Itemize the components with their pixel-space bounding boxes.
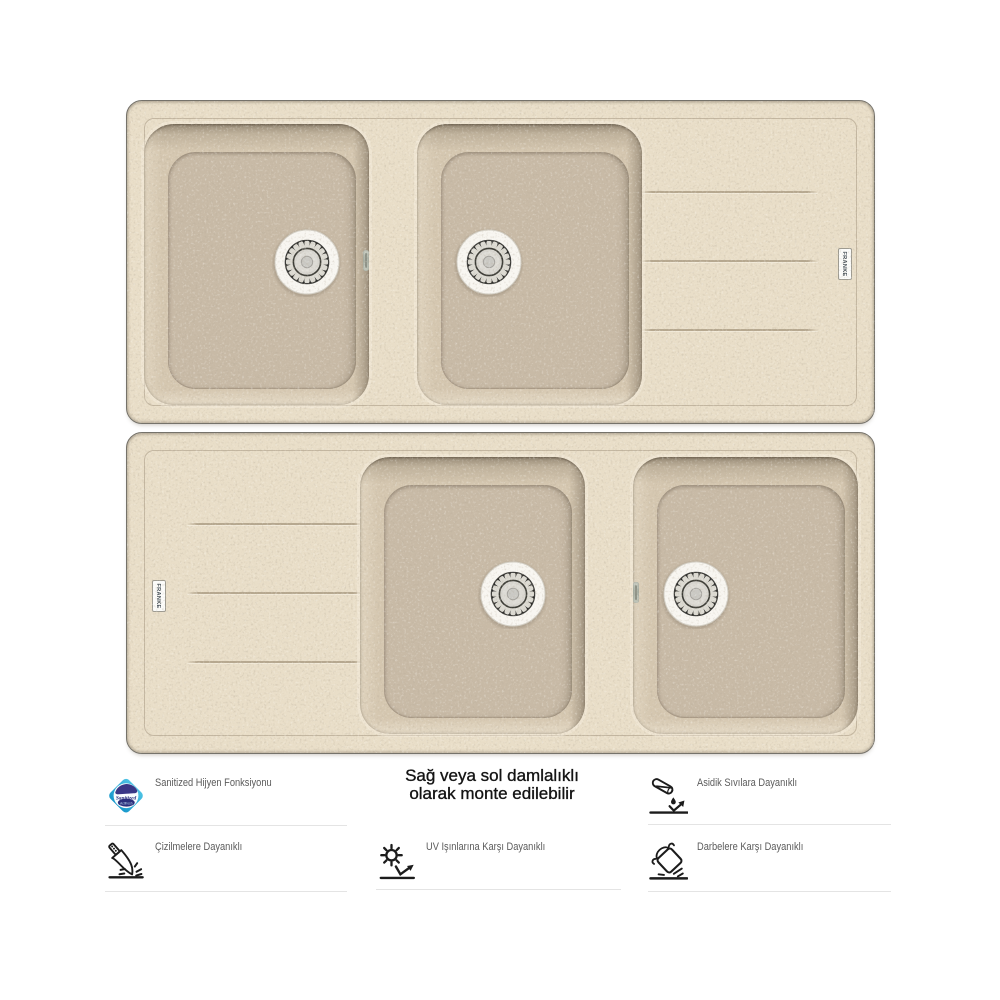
svg-text:Actifresh: Actifresh [120, 801, 133, 805]
